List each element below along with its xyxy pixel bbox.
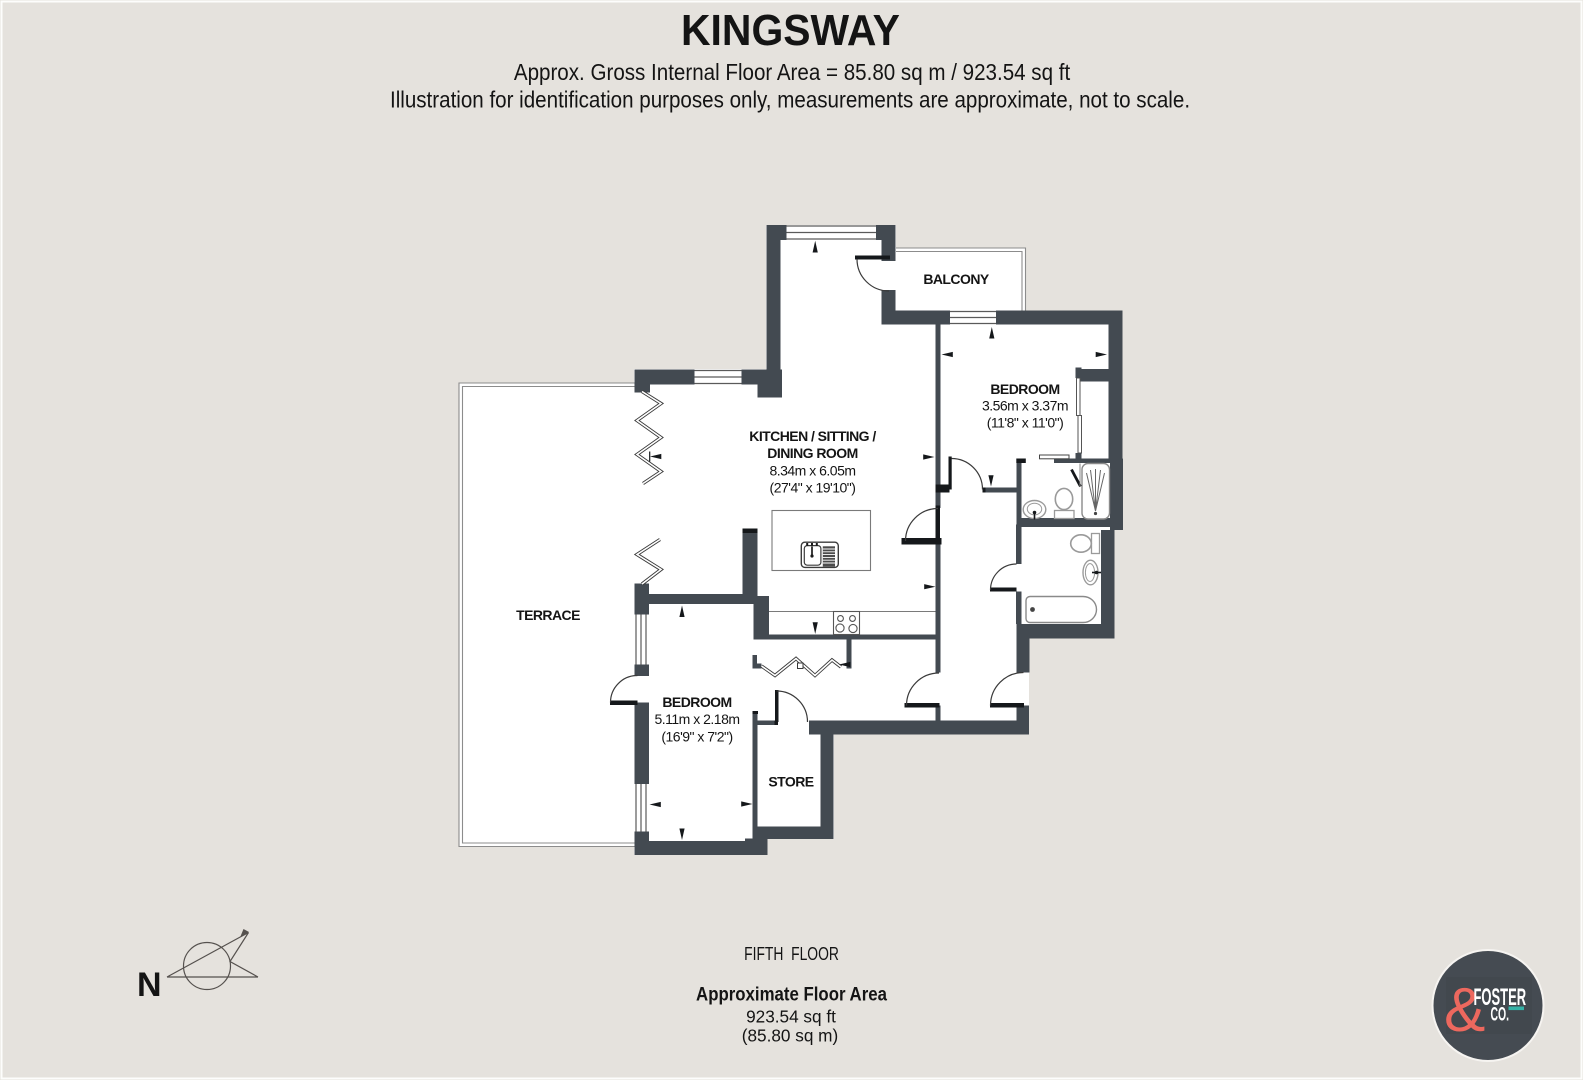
svg-text:Approximate Floor Area: Approximate Floor Area <box>696 984 888 1005</box>
svg-text:KITCHEN / SITTING /: KITCHEN / SITTING / <box>749 428 876 444</box>
svg-text:(11'8" x 11'0"): (11'8" x 11'0") <box>987 415 1064 431</box>
svg-text:Approx. Gross Internal Floor A: Approx. Gross Internal Floor Area = 85.8… <box>514 59 1070 85</box>
svg-text:(27'4" x 19'10"): (27'4" x 19'10") <box>770 480 856 496</box>
svg-text:TERRACE: TERRACE <box>516 607 580 623</box>
svg-text:3.56m x 3.37m: 3.56m x 3.37m <box>982 398 1068 414</box>
svg-text:923.54 sq ft: 923.54 sq ft <box>746 1006 836 1026</box>
svg-text:STORE: STORE <box>768 773 813 789</box>
svg-text:CO.: CO. <box>1491 1004 1510 1025</box>
svg-text:KINGSWAY: KINGSWAY <box>681 7 900 56</box>
svg-text:N: N <box>137 966 162 1004</box>
svg-text:BALCONY: BALCONY <box>923 271 990 287</box>
svg-text:FIFTH FLOOR: FIFTH FLOOR <box>744 944 839 964</box>
svg-text:(85.80 sq m): (85.80 sq m) <box>742 1025 838 1045</box>
svg-text:DINING ROOM: DINING ROOM <box>767 445 857 461</box>
svg-text:8.34m x 6.05m: 8.34m x 6.05m <box>769 462 855 478</box>
svg-text:Illustration for identificatio: Illustration for identification purposes… <box>390 86 1190 112</box>
svg-text:5.11m x 2.18m: 5.11m x 2.18m <box>654 711 739 727</box>
svg-text:(16'9" x 7'2"): (16'9" x 7'2") <box>661 728 732 744</box>
svg-text:BEDROOM: BEDROOM <box>662 694 731 710</box>
svg-text:BEDROOM: BEDROOM <box>990 381 1059 397</box>
